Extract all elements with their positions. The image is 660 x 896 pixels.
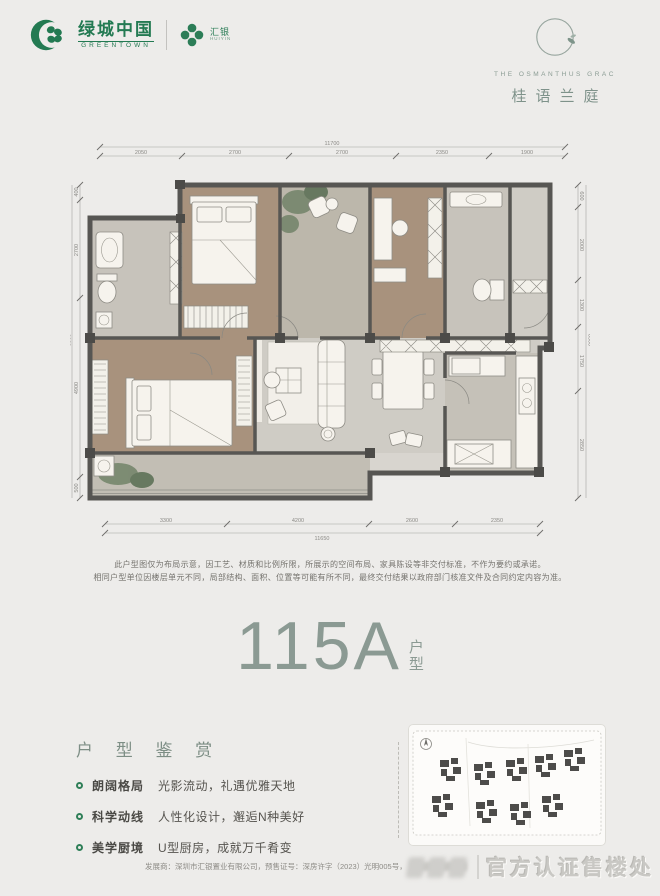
header-logos: 绿城中国 GREENTOWN 汇银 HUIYIN [28, 16, 231, 54]
svg-text:1750: 1750 [578, 355, 584, 367]
disclaimer-line2: 相同户型单位因楼层单元不同，局部结构、面积、位置等可能有所不同，最终交付结果以政… [70, 571, 590, 584]
unit-suffix-bottom: 型 [409, 656, 424, 673]
svg-text:2350: 2350 [491, 518, 503, 524]
project-name-cn: 桂语兰庭 [480, 85, 630, 106]
watermark-divider [477, 855, 479, 879]
appreciation-title: 户 型 鉴 赏 [76, 736, 386, 761]
appreciation-desc: 人性化设计，邂逅N种美好 [158, 808, 305, 825]
floor-plan: 11700 2050 2700 2700 2350 1900 3300 4200… [70, 140, 590, 548]
bedroom2-furniture [184, 196, 258, 328]
svg-text:3300: 3300 [160, 518, 172, 524]
watermark-text: 官方认证售楼处 [486, 852, 654, 882]
huiyin-logo: 汇银 HUIYIN [179, 22, 231, 48]
svg-text:2700: 2700 [336, 150, 348, 156]
unit-suffix: 户 型 [409, 639, 424, 673]
svg-text:11650: 11650 [315, 536, 330, 542]
appreciation-desc: 光影流动，礼遇优雅天地 [158, 777, 296, 794]
page: 绿城中国 GREENTOWN 汇银 HUIYIN THE OSMANTHUS G… [0, 0, 660, 896]
bullet-icon [76, 844, 83, 851]
greentown-name-en: GREENTOWN [78, 41, 154, 50]
appreciation-item-2: 科学动线 人性化设计，邂逅N种美好 [76, 808, 386, 825]
disclaimer-line1: 此户型图仅为布局示意，因工艺、材质和比例所限，所展示的空间布局、家具陈设等非交付… [70, 558, 590, 571]
plan-disclaimer: 此户型图仅为布局示意，因工艺、材质和比例所限，所展示的空间布局、家具陈设等非交付… [70, 558, 590, 584]
watermark: 官方认证售楼处 [407, 852, 654, 882]
site-plan-card [408, 724, 606, 846]
svg-text:1300: 1300 [578, 299, 584, 311]
unit-title: 115A 户 型 [0, 614, 660, 679]
svg-text:4900: 4900 [74, 382, 80, 394]
watermark-logo [427, 857, 447, 878]
svg-text:400: 400 [74, 187, 80, 196]
svg-text:1900: 1900 [521, 150, 533, 156]
appreciation-label: 朗阔格局 [92, 777, 144, 794]
svg-text:2050: 2050 [135, 150, 147, 156]
appreciation-label: 美学厨境 [92, 839, 144, 856]
site-plan-map [408, 724, 606, 846]
appreciation-item-3: 美学厨境 U型厨房，成就万千肴变 [76, 839, 386, 856]
project-name-en: THE OSMANTHUS GRAC [480, 71, 630, 78]
developer-info: 发展商：深圳市汇银置业有限公司，预售证号：深房许字（2023）光明005号， [145, 861, 407, 872]
appreciation-desc: U型厨房，成就万千肴变 [158, 839, 292, 856]
svg-text:8500: 8500 [70, 334, 73, 346]
svg-text:2850: 2850 [578, 439, 584, 451]
osmanthus-ring-icon [532, 14, 578, 60]
svg-text:600: 600 [578, 191, 584, 200]
appreciation-section: 户 型 鉴 赏 朗阔格局 光影流动，礼遇优雅天地 科学动线 人性化设计，邂逅N种… [76, 736, 386, 870]
unit-suffix-top: 户 [409, 639, 424, 656]
greentown-name-cn: 绿城中国 [78, 21, 154, 39]
svg-text:2350: 2350 [436, 150, 448, 156]
svg-text:2000: 2000 [578, 239, 584, 251]
project-logo: THE OSMANTHUS GRAC 桂语兰庭 [480, 14, 630, 106]
watermark-logo [406, 857, 426, 878]
bullet-icon [76, 782, 83, 789]
svg-text:2700: 2700 [74, 244, 80, 256]
greentown-logo-icon [28, 16, 66, 54]
svg-text:8500: 8500 [587, 334, 591, 346]
svg-text:500: 500 [74, 483, 80, 492]
huiyin-name-en: HUIYIN [210, 37, 231, 42]
bullet-icon [76, 813, 83, 820]
section-divider [398, 742, 399, 838]
svg-text:2700: 2700 [229, 150, 241, 156]
appreciation-item-1: 朗阔格局 光影流动，礼遇优雅天地 [76, 777, 386, 794]
header-divider [166, 20, 167, 50]
svg-text:11700: 11700 [325, 141, 340, 147]
svg-text:4200: 4200 [292, 518, 304, 524]
watermark-logo [448, 857, 468, 878]
unit-number: 115A [236, 614, 402, 679]
huiyin-logo-icon [179, 22, 205, 48]
svg-text:2600: 2600 [406, 518, 418, 524]
appreciation-label: 科学动线 [92, 808, 144, 825]
